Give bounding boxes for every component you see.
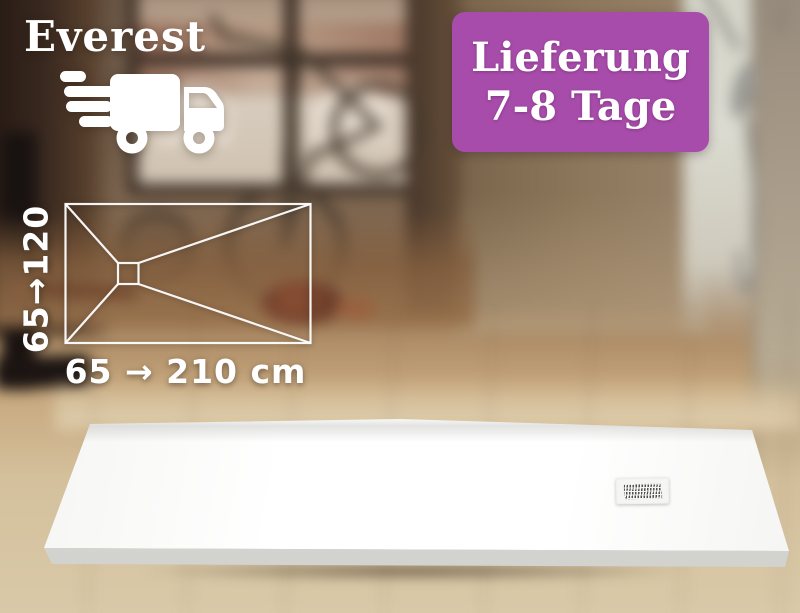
product-image: Everest Lieferung 7-8 Tage 65→120 65 → 2… — [0, 0, 800, 613]
drain-grate-slots — [624, 484, 662, 500]
depth-range-label: 65→120 — [19, 202, 55, 357]
width-range-label: 65 → 210 cm — [58, 352, 313, 391]
delivery-badge-title: Lieferung — [471, 38, 690, 78]
size-diagram — [55, 194, 325, 356]
delivery-badge-duration: 7-8 Tage — [485, 87, 676, 127]
delivery-badge: Lieferung 7-8 Tage — [452, 12, 709, 152]
delivery-truck-icon — [48, 62, 238, 157]
drain-grate — [616, 478, 669, 505]
brand-logo: Everest — [24, 12, 206, 61]
